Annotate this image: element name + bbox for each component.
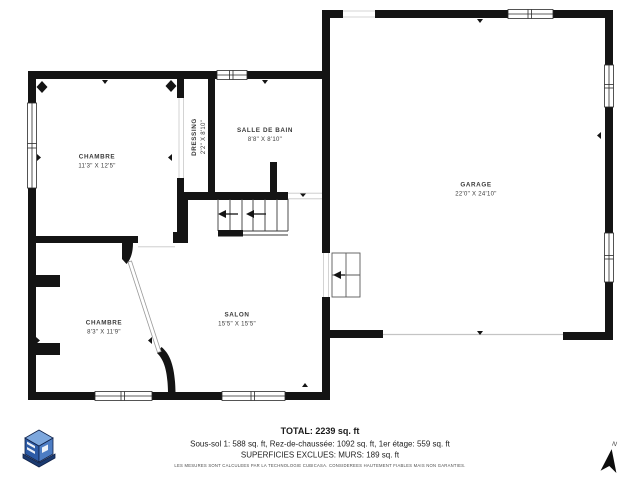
wall [28,71,217,79]
wall [563,332,613,340]
wall [322,10,343,18]
garage-steps [332,253,360,297]
window-garage-right-upper [605,65,614,107]
room-dims: 8'8" X 8'10" [248,137,282,143]
room-label-chambre-1: CHAMBRE 11'3" X 12'5" [78,154,115,170]
north-label: N [612,441,618,449]
walls [28,10,613,400]
window-salon [222,392,285,401]
wall [36,343,60,355]
room-label-salon: SALON 15'5" X 15'5" [218,312,256,328]
wall [182,200,188,237]
window-bottom-bedroom [95,392,152,401]
room-label-garage: GARAGE 22'0" X 24'10" [455,182,496,198]
wall [177,79,184,98]
room-name: SALON [224,312,249,319]
wall [28,392,95,400]
north-compass-icon: N [601,440,621,473]
footer: TOTAL: 2239 sq. ft Sous-sol 1: 588 sq. f… [174,426,465,468]
wall [330,330,383,338]
wall [605,107,613,233]
window-bathroom [217,71,247,80]
curved-wall-cap [157,347,176,392]
floor-plan-page: CHAMBRE 11'3" X 12'5" DRESSING 2'2" X 8'… [0,0,640,480]
wall [605,282,613,340]
staircase [218,199,288,237]
room-name: SALLE DE BAIN [237,127,293,134]
windows [28,10,614,401]
room-dims: 15'5" X 15'5" [218,322,256,328]
room-dims: 22'0" X 24'10" [455,192,496,198]
wall [36,275,60,287]
room-separator [128,261,161,353]
cubicasa-3d-logo-icon [23,430,55,467]
stair-landing-wall [218,230,243,237]
floor-plan: CHAMBRE 11'3" X 12'5" DRESSING 2'2" X 8'… [0,0,640,480]
window-left-bedroom [28,103,37,188]
wall [28,236,138,243]
room-name: DRESSING [191,118,198,156]
footer-disclaimer: LES MESURES SONT CALCULEES PAR LA TECHNO… [174,463,465,468]
diamond-marker [166,80,177,92]
room-name: CHAMBRE [79,154,115,161]
footer-total: TOTAL: 2239 sq. ft [281,426,360,436]
wall [28,71,36,103]
window-garage-top [508,10,553,19]
room-dims: 8'3" X 11'9" [87,330,121,336]
wall [375,10,508,18]
room-dims: 2'2" X 8'10" [201,120,207,154]
wall [322,297,330,400]
footer-breakdown: Sous-sol 1: 588 sq. ft, Rez-de-chaussée:… [190,440,450,449]
diamond-marker [37,81,48,93]
footer-exclusions: SUPERFICIES EXCLUES: MURS: 189 sq. ft [241,451,400,460]
wall [270,162,277,200]
room-name: CHAMBRE [86,320,122,327]
wall [28,188,36,400]
room-name: GARAGE [460,182,491,189]
wall [152,392,222,400]
wall [553,10,613,18]
window-garage-right-lower [605,233,614,282]
north-arrow [601,448,620,473]
room-dims: 11'3" X 12'5" [78,164,115,170]
wall [208,79,215,200]
room-label-dressing: DRESSING 2'2" X 8'10" [191,118,207,156]
wall [605,10,613,65]
wall [247,71,322,79]
room-label-salle-de-bain: SALLE DE BAIN 8'8" X 8'10" [237,127,293,143]
room-label-chambre-2: CHAMBRE 8'3" X 11'9" [86,320,122,336]
